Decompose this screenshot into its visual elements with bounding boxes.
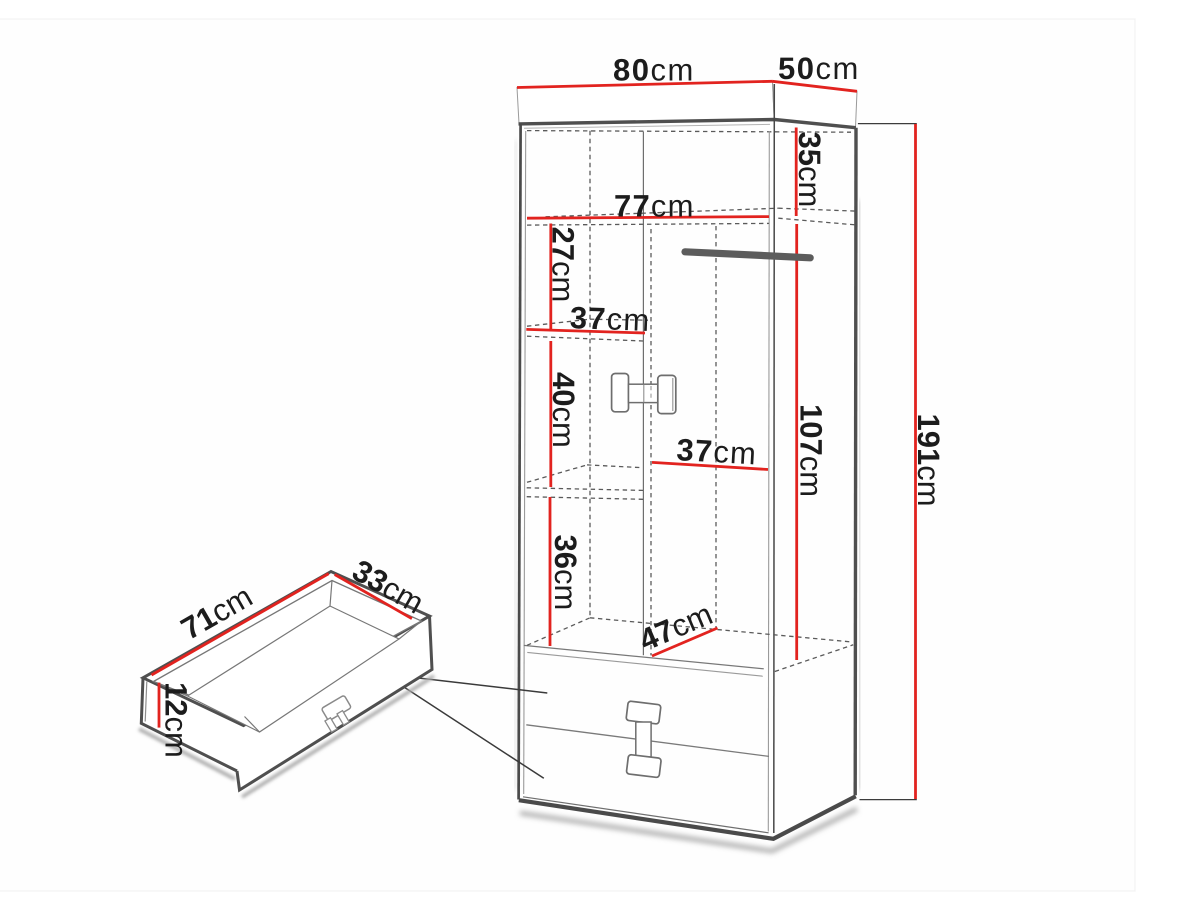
svg-text:191cm: 191cm (911, 414, 946, 507)
svg-text:77cm: 77cm (614, 189, 695, 224)
svg-text:36cm: 36cm (548, 535, 583, 611)
svg-text:80cm: 80cm (613, 53, 695, 88)
svg-text:50cm: 50cm (778, 51, 860, 86)
svg-text:12cm: 12cm (159, 682, 194, 758)
svg-text:35cm: 35cm (792, 132, 827, 208)
svg-text:27cm: 27cm (546, 227, 581, 303)
svg-text:37cm: 37cm (676, 432, 758, 471)
svg-text:37cm: 37cm (569, 300, 651, 338)
svg-text:107cm: 107cm (794, 404, 829, 497)
svg-text:40cm: 40cm (546, 372, 581, 448)
